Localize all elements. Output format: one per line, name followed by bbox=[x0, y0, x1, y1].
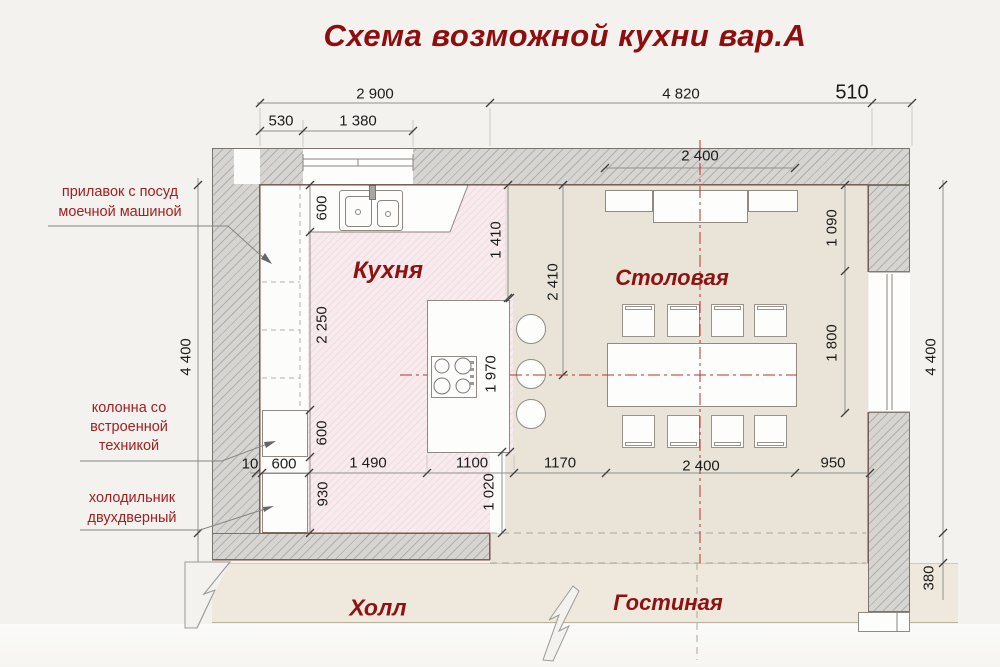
dim-island-length: 1 970 bbox=[483, 355, 500, 393]
dim-kitchen-width-total: 2 900 bbox=[356, 86, 394, 103]
dim-passage: 1 020 bbox=[481, 473, 498, 511]
dim-gap-small: 10 bbox=[242, 456, 259, 473]
leader-arrows bbox=[48, 226, 276, 530]
dim-niche-width: 2 400 bbox=[681, 148, 719, 165]
annotation-line: колонна со bbox=[76, 399, 182, 418]
leader-counter bbox=[48, 226, 266, 260]
annotation-fridge: холодильник двухдверный bbox=[74, 488, 190, 528]
dim-table-width: 2 400 bbox=[682, 458, 720, 475]
dim-counter-run: 2 250 bbox=[314, 306, 331, 344]
annotation-line: встроенной bbox=[76, 418, 182, 437]
room-label-kitchen: Кухня bbox=[353, 257, 423, 285]
dim-kitchen-gap: 1 410 bbox=[488, 221, 505, 259]
annotation-line: техникой bbox=[76, 437, 182, 456]
dim-dining-depth: 2 410 bbox=[545, 263, 562, 301]
dim-counter-width: 1 490 bbox=[349, 455, 387, 472]
dim-window-offset: 530 bbox=[268, 113, 293, 130]
dim-right-opening: 380 bbox=[921, 565, 938, 590]
room-label-living: Гостиная bbox=[613, 590, 723, 616]
dim-aisle-width: 1170 bbox=[544, 455, 576, 472]
dim-fridge-width: 600 bbox=[271, 456, 296, 473]
centerlines bbox=[400, 140, 797, 563]
annotation-line: моечной машиной bbox=[44, 202, 196, 222]
annotation-column: колонна со встроенной техникой bbox=[76, 399, 182, 456]
dim-fridge-zone: 930 bbox=[315, 481, 332, 506]
floor-plan: Схема возможной кухни вар.А bbox=[0, 0, 1000, 667]
dim-right-margin: 950 bbox=[820, 455, 845, 472]
casework-lines bbox=[262, 185, 468, 410]
room-label-dining: Столовая bbox=[615, 265, 729, 291]
dim-room-height-right: 4 400 bbox=[923, 338, 940, 376]
dim-island-width: 1100 bbox=[456, 455, 488, 472]
dim-window-width: 1 380 bbox=[339, 113, 377, 130]
dim-right-wall: 510 bbox=[835, 82, 868, 105]
dim-column-depth: 600 bbox=[314, 420, 331, 445]
dim-counter-depth: 600 bbox=[314, 195, 331, 220]
annotation-line: прилавок с посуд bbox=[44, 182, 196, 202]
dim-dining-width-total: 4 820 bbox=[662, 86, 700, 103]
room-label-hall: Холл bbox=[349, 595, 406, 622]
annotation-line: холодильник bbox=[74, 488, 190, 508]
annotation-line: двухдверный bbox=[74, 508, 190, 528]
dim-table-zone: 1 800 bbox=[824, 324, 841, 362]
dim-room-height-left: 4 400 bbox=[178, 338, 195, 376]
annotation-counter: прилавок с посуд моечной машиной bbox=[44, 182, 196, 222]
dim-sideboard-zone: 1 090 bbox=[824, 209, 841, 247]
burners bbox=[434, 358, 474, 394]
